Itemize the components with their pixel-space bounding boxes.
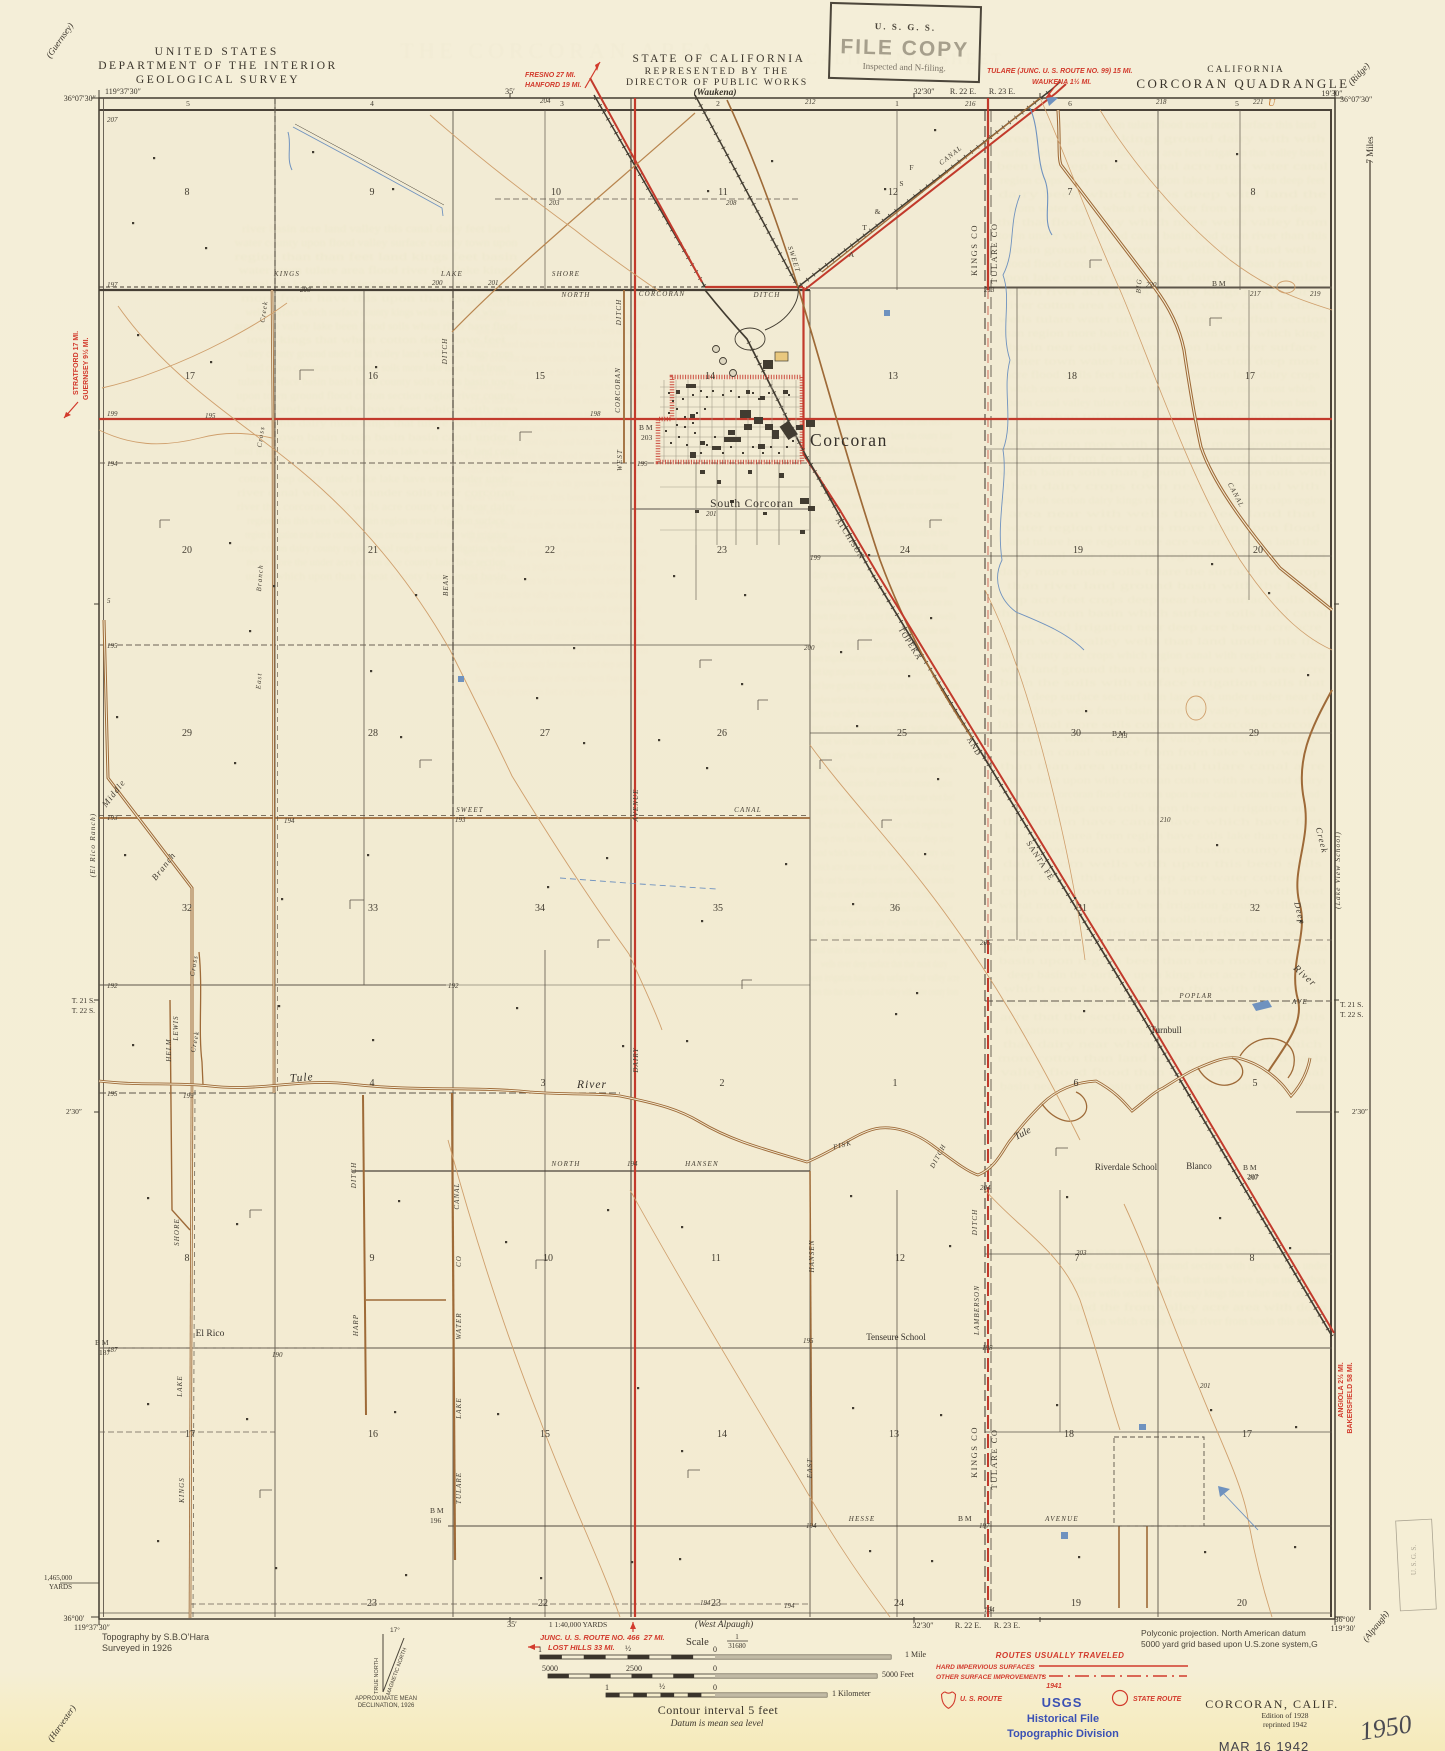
- svg-text:LAMBERSON: LAMBERSON: [973, 1285, 981, 1336]
- svg-text:200: 200: [804, 644, 815, 652]
- svg-text:26: 26: [717, 728, 727, 739]
- svg-text:12: 12: [888, 187, 898, 198]
- svg-text:BEAN: BEAN: [442, 574, 450, 596]
- svg-text:207: 207: [1247, 1172, 1259, 1181]
- svg-text:EAST: EAST: [806, 1458, 814, 1479]
- svg-text:23: 23: [367, 1598, 377, 1609]
- svg-text:5000: 5000: [542, 1664, 558, 1673]
- svg-text:CANAL: CANAL: [453, 1182, 461, 1209]
- svg-text:199: 199: [637, 460, 648, 468]
- svg-text:DITCH: DITCH: [971, 1209, 979, 1237]
- svg-text:16: 16: [368, 1429, 378, 1440]
- svg-text:36°07′30″: 36°07′30″: [64, 94, 96, 103]
- svg-text:28: 28: [368, 728, 378, 739]
- svg-text:R. 22 E.: R. 22 E.: [955, 1621, 981, 1630]
- svg-text:JUNC. U. S. ROUTE NO. 466 27: JUNC. U. S. ROUTE NO. 466 27 MI.: [540, 1633, 665, 1642]
- svg-text:31: 31: [1077, 903, 1087, 914]
- svg-text:HARP: HARP: [352, 1314, 360, 1337]
- svg-text:198: 198: [590, 410, 601, 418]
- svg-text:KINGS: KINGS: [178, 1477, 186, 1504]
- svg-text:13: 13: [888, 371, 898, 382]
- svg-text:3: 3: [541, 1078, 546, 1089]
- svg-text:NORTH: NORTH: [551, 1160, 581, 1168]
- svg-text:B M: B M: [1212, 279, 1226, 288]
- svg-text:U. S. G. S.: U. S. G. S.: [875, 21, 937, 33]
- svg-text:193: 193: [455, 816, 466, 824]
- svg-text:5: 5: [1235, 99, 1239, 108]
- svg-text:STATE OF CALIFORNIA: STATE OF CALIFORNIA: [632, 53, 805, 65]
- svg-text:216: 216: [965, 100, 976, 108]
- svg-text:203: 203: [549, 199, 560, 207]
- svg-text:2′30″: 2′30″: [1352, 1107, 1368, 1116]
- svg-text:2500: 2500: [626, 1664, 642, 1673]
- svg-text:F: F: [909, 163, 914, 172]
- svg-text:½: ½: [659, 1682, 665, 1691]
- svg-text:194: 194: [700, 1599, 711, 1607]
- svg-text:6: 6: [1068, 99, 1072, 108]
- svg-text:TULARE: TULARE: [455, 1472, 463, 1504]
- svg-text:CORCORAN: CORCORAN: [639, 290, 686, 298]
- svg-text:7 Miles: 7 Miles: [1365, 136, 1375, 164]
- svg-text:Surveyed in 1926: Surveyed in 1926: [102, 1643, 172, 1653]
- svg-text:HANSEN: HANSEN: [684, 1160, 719, 1168]
- svg-text:GUERNSEY 9½ MI.: GUERNSEY 9½ MI.: [82, 337, 90, 400]
- svg-text:23: 23: [711, 1598, 721, 1609]
- svg-text:1: 1: [735, 1633, 739, 1641]
- svg-text:194: 194: [806, 1522, 817, 1530]
- svg-text:1,465,000: 1,465,000: [44, 1574, 73, 1582]
- svg-text:194: 194: [627, 1160, 638, 1168]
- svg-text:10: 10: [543, 1253, 553, 1264]
- svg-text:LOST HILLS 33 MI.: LOST HILLS 33 MI.: [548, 1643, 615, 1652]
- svg-text:201: 201: [1200, 1382, 1211, 1390]
- svg-text:KINGS CO: KINGS CO: [969, 1426, 979, 1478]
- svg-text:KINGS: KINGS: [273, 270, 300, 278]
- svg-text:199: 199: [107, 410, 118, 418]
- svg-text:GEOLOGICAL SURVEY: GEOLOGICAL SURVEY: [136, 74, 300, 86]
- svg-text:35: 35: [713, 903, 723, 914]
- svg-text:Blanco: Blanco: [1186, 1161, 1212, 1171]
- svg-text:194: 194: [784, 1602, 795, 1610]
- svg-text:DITCH: DITCH: [615, 299, 623, 327]
- svg-text:5000 Feet: 5000 Feet: [882, 1670, 915, 1679]
- svg-text:36°07′30″: 36°07′30″: [1340, 95, 1372, 104]
- svg-text:8: 8: [1251, 187, 1256, 198]
- svg-text:Corcoran: Corcoran: [810, 430, 888, 450]
- svg-text:LEWIS: LEWIS: [172, 1015, 180, 1041]
- svg-text:196: 196: [430, 1516, 442, 1525]
- svg-text:&: &: [875, 207, 882, 216]
- svg-text:11: 11: [711, 1253, 721, 1264]
- svg-text:195: 195: [803, 1337, 814, 1345]
- svg-text:DITCH: DITCH: [752, 291, 780, 299]
- svg-text:9: 9: [370, 187, 375, 198]
- svg-text:STATE ROUTE: STATE ROUTE: [1133, 1696, 1182, 1703]
- svg-text:22: 22: [545, 545, 555, 556]
- svg-text:33: 33: [368, 903, 378, 914]
- svg-text:1: 1: [538, 1645, 542, 1654]
- svg-text:BIG: BIG: [1134, 278, 1143, 293]
- svg-text:POPLAR: POPLAR: [1178, 992, 1212, 1000]
- svg-text:1 1:40,000 YARDS: 1 1:40,000 YARDS: [549, 1620, 607, 1629]
- svg-text:BAKERSFIELD 58 MI.: BAKERSFIELD 58 MI.: [1347, 1362, 1354, 1433]
- svg-text:DECLINATION, 1926: DECLINATION, 1926: [358, 1703, 415, 1709]
- svg-text:23: 23: [717, 545, 727, 556]
- svg-text:NORTH: NORTH: [561, 291, 591, 299]
- svg-text:15: 15: [540, 1429, 550, 1440]
- svg-text:B M: B M: [1243, 1163, 1257, 1172]
- svg-text:LAKE: LAKE: [455, 1397, 463, 1420]
- svg-text:193: 193: [107, 814, 118, 822]
- svg-text:14: 14: [705, 371, 715, 382]
- svg-text:195: 195: [205, 412, 216, 420]
- svg-text:218: 218: [1156, 98, 1167, 106]
- svg-text:B M: B M: [639, 423, 653, 432]
- svg-text:0: 0: [713, 1645, 717, 1654]
- svg-text:CANAL: CANAL: [734, 806, 762, 814]
- svg-text:HELM: HELM: [165, 1038, 173, 1063]
- svg-text:14: 14: [717, 1429, 727, 1440]
- svg-text:B M: B M: [95, 1338, 109, 1347]
- svg-text:8: 8: [1250, 1253, 1255, 1264]
- svg-text:ROUTES USUALLY TRAVELED: ROUTES USUALLY TRAVELED: [996, 1651, 1125, 1660]
- svg-text:LAKE: LAKE: [176, 1375, 184, 1398]
- svg-text:20: 20: [1237, 1598, 1247, 1609]
- svg-text:MAR 16 1942: MAR 16 1942: [1219, 1739, 1310, 1751]
- svg-text:203: 203: [1076, 1249, 1087, 1257]
- svg-text:Topography by S.B.O’Hara: Topography by S.B.O’Hara: [102, 1632, 209, 1642]
- svg-text:24: 24: [894, 1598, 904, 1609]
- svg-text:194: 194: [284, 817, 295, 825]
- svg-text:DAIRY: DAIRY: [632, 1047, 640, 1073]
- svg-text:119°37′30″: 119°37′30″: [74, 1623, 110, 1632]
- svg-text:T. 22 S.: T. 22 S.: [72, 1006, 95, 1015]
- svg-text:East: East: [254, 672, 263, 690]
- svg-text:17: 17: [1245, 371, 1255, 382]
- svg-text:B M: B M: [958, 1514, 972, 1523]
- svg-text:194: 194: [107, 460, 118, 468]
- svg-text:(Waukena): (Waukena): [693, 87, 736, 98]
- svg-text:B M: B M: [430, 1506, 444, 1515]
- svg-text:Historical File: Historical File: [1027, 1713, 1099, 1725]
- svg-text:201: 201: [706, 510, 717, 518]
- svg-text:29: 29: [1249, 728, 1259, 739]
- svg-text:CO: CO: [455, 1255, 463, 1267]
- svg-text:8: 8: [185, 1253, 190, 1264]
- svg-text:11: 11: [718, 187, 728, 198]
- svg-text:2′30″: 2′30″: [66, 1107, 82, 1116]
- svg-text:201: 201: [488, 279, 499, 287]
- svg-text:Tule: Tule: [289, 1071, 314, 1085]
- svg-text:213: 213: [984, 286, 995, 294]
- svg-text:29: 29: [182, 728, 192, 739]
- svg-text:2: 2: [720, 1078, 725, 1089]
- svg-text:A: A: [849, 250, 855, 259]
- svg-text:16: 16: [368, 371, 378, 382]
- svg-text:30: 30: [1071, 728, 1081, 739]
- svg-text:TULARE CO: TULARE CO: [989, 223, 999, 284]
- svg-text:SHORE: SHORE: [552, 270, 580, 278]
- svg-text:HESSE: HESSE: [848, 1515, 876, 1523]
- svg-text:TULARE (JUNC. U. S. ROUTE NO.: TULARE (JUNC. U. S. ROUTE NO. 99) 15 MI.: [987, 68, 1133, 75]
- svg-text:R. 23 E.: R. 23 E.: [989, 87, 1015, 96]
- svg-text:200: 200: [300, 286, 311, 294]
- svg-text:U. S. ROUTE: U. S. ROUTE: [960, 1696, 1002, 1703]
- svg-text:19: 19: [1073, 545, 1083, 556]
- svg-text:25: 25: [897, 728, 907, 739]
- svg-text:205: 205: [980, 939, 991, 947]
- svg-text:USGS: USGS: [1042, 1695, 1083, 1710]
- svg-text:APPROXIMATE MEAN: APPROXIMATE MEAN: [355, 1696, 417, 1702]
- svg-text:200: 200: [432, 279, 443, 287]
- svg-text:192: 192: [448, 982, 459, 990]
- svg-text:Tenseure School: Tenseure School: [866, 1332, 926, 1342]
- svg-text:194: 194: [984, 1606, 995, 1614]
- svg-text:1941: 1941: [1046, 1683, 1062, 1690]
- svg-text:197: 197: [107, 281, 118, 289]
- svg-text:12: 12: [895, 1253, 905, 1264]
- svg-text:203: 203: [641, 433, 653, 442]
- svg-text:17: 17: [185, 1429, 195, 1440]
- svg-text:River: River: [576, 1079, 607, 1091]
- svg-text:36°00′: 36°00′: [64, 1614, 85, 1623]
- svg-text:B M: B M: [1112, 729, 1126, 738]
- svg-text:Datum is mean sea level: Datum is mean sea level: [670, 1719, 764, 1729]
- svg-text:T. 21 S.: T. 21 S.: [1340, 1000, 1363, 1009]
- svg-text:(El Rico Ranch): (El Rico Ranch): [88, 813, 97, 878]
- svg-text:WEST: WEST: [616, 449, 624, 471]
- svg-text:FRESNO 27 MI.: FRESNO 27 MI.: [525, 72, 576, 79]
- svg-text:1: 1: [605, 1683, 609, 1692]
- svg-text:reprinted 1942: reprinted 1942: [1263, 1720, 1307, 1729]
- svg-text:CALIFORNIA: CALIFORNIA: [1207, 65, 1285, 75]
- svg-text:17: 17: [1242, 1429, 1252, 1440]
- svg-text:36: 36: [890, 903, 900, 914]
- svg-text:34: 34: [535, 903, 545, 914]
- svg-text:208: 208: [726, 199, 737, 207]
- svg-text:5: 5: [1253, 1078, 1258, 1089]
- svg-text:5: 5: [107, 597, 111, 605]
- svg-text:Scale: Scale: [686, 1637, 709, 1648]
- svg-text:2: 2: [716, 99, 720, 108]
- svg-text:TULARE CO: TULARE CO: [989, 1429, 999, 1490]
- svg-text:ANGIOLA 2½ MI.: ANGIOLA 2½ MI.: [1337, 1362, 1345, 1417]
- svg-text:195: 195: [107, 1090, 118, 1098]
- svg-text:S: S: [899, 179, 904, 188]
- svg-text:Edition of 1928: Edition of 1928: [1261, 1711, 1308, 1720]
- svg-text:U. S. G. S.: U. S. G. S.: [1410, 1545, 1418, 1575]
- svg-text:REPRESENTED BY THE: REPRESENTED BY THE: [645, 66, 790, 77]
- svg-text:HANSEN: HANSEN: [808, 1239, 816, 1273]
- svg-text:20: 20: [182, 545, 192, 556]
- svg-text:21: 21: [368, 545, 378, 556]
- svg-text:204: 204: [540, 97, 551, 105]
- svg-text:9: 9: [370, 1253, 375, 1264]
- svg-text:221: 221: [1253, 98, 1264, 106]
- svg-text:32: 32: [1250, 903, 1260, 914]
- svg-text:T: T: [862, 223, 868, 232]
- svg-text:Riverdale School: Riverdale School: [1095, 1162, 1158, 1172]
- svg-text:Contour interval 5 feet: Contour interval 5 feet: [658, 1703, 779, 1717]
- svg-text:18: 18: [1067, 371, 1077, 382]
- svg-text:SHORE: SHORE: [173, 1218, 181, 1246]
- svg-text:UNITED STATES: UNITED STATES: [155, 46, 280, 58]
- svg-text:31680: 31680: [728, 1642, 746, 1650]
- svg-text:HARD IMPERVIOUS SURFACES: HARD IMPERVIOUS SURFACES: [936, 1664, 1035, 1671]
- svg-text:220: 220: [1146, 281, 1157, 289]
- svg-text:219: 219: [1310, 290, 1321, 298]
- svg-text:24: 24: [900, 545, 910, 556]
- svg-text:OTHER SURFACE IMPROVEMENTS: OTHER SURFACE IMPROVEMENTS: [936, 1674, 1047, 1681]
- svg-text:DEPARTMENT OF THE INTERIOR: DEPARTMENT OF THE INTERIOR: [98, 60, 337, 72]
- svg-text:T. 22 S.: T. 22 S.: [1340, 1010, 1363, 1019]
- svg-text:20: 20: [1253, 545, 1263, 556]
- svg-text:5000 yard grid based upon U.S.: 5000 yard grid based upon U.S.zone syste…: [1141, 1639, 1318, 1649]
- svg-text:KINGS CO: KINGS CO: [969, 224, 979, 276]
- svg-text:15: 15: [535, 371, 545, 382]
- svg-text:R. 22 E.: R. 22 E.: [950, 87, 976, 96]
- svg-text:199: 199: [810, 554, 821, 562]
- svg-text:TRUE NORTH: TRUE NORTH: [374, 1658, 380, 1694]
- svg-text:SWEET: SWEET: [456, 806, 484, 814]
- svg-text:18: 18: [1064, 1429, 1074, 1440]
- svg-text:FILE COPY: FILE COPY: [840, 35, 969, 62]
- svg-text:190: 190: [272, 1351, 283, 1359]
- svg-text:1 Kilometer: 1 Kilometer: [832, 1689, 871, 1698]
- svg-text:0: 0: [713, 1664, 717, 1673]
- svg-text:8: 8: [185, 187, 190, 198]
- svg-text:27: 27: [540, 728, 550, 739]
- svg-text:LAKE: LAKE: [440, 270, 463, 278]
- svg-text:3: 3: [560, 99, 564, 108]
- svg-text:AVENUE: AVENUE: [632, 788, 640, 822]
- svg-text:4: 4: [370, 99, 374, 108]
- svg-text:17: 17: [185, 371, 195, 382]
- svg-text:1 Mile: 1 Mile: [905, 1650, 927, 1659]
- svg-text:7: 7: [1068, 187, 1073, 198]
- svg-text:WATER: WATER: [455, 1312, 463, 1339]
- svg-text:199: 199: [183, 1092, 194, 1100]
- svg-text:198: 198: [982, 1344, 993, 1352]
- svg-text:13: 13: [889, 1429, 899, 1440]
- svg-text:36°00′: 36°00′: [1335, 1615, 1356, 1624]
- svg-text:AVENUE: AVENUE: [1044, 1515, 1079, 1523]
- svg-text:CORCORAN QUADRANGLE: CORCORAN QUADRANGLE: [1136, 76, 1349, 91]
- svg-text:Turnbull: Turnbull: [1150, 1025, 1182, 1035]
- svg-text:17°: 17°: [390, 1626, 400, 1634]
- svg-text:35′: 35′: [507, 1620, 517, 1629]
- svg-text:197: 197: [979, 1522, 990, 1530]
- svg-text:210: 210: [1160, 816, 1171, 824]
- svg-text:195: 195: [107, 642, 118, 650]
- svg-text:32′30″: 32′30″: [913, 87, 934, 96]
- svg-text:187: 187: [99, 1348, 111, 1357]
- svg-text:Topographic Division: Topographic Division: [1007, 1728, 1119, 1740]
- svg-text:(West Alpaugh): (West Alpaugh): [695, 1619, 753, 1630]
- svg-text:South Corcoran: South Corcoran: [710, 498, 794, 510]
- svg-text:U: U: [1268, 98, 1276, 109]
- svg-text:10: 10: [551, 187, 561, 198]
- svg-text:R. 23 E.: R. 23 E.: [994, 1621, 1020, 1630]
- svg-text:HANFORD 19 MI.: HANFORD 19 MI.: [525, 82, 581, 89]
- svg-text:½: ½: [625, 1644, 631, 1653]
- svg-text:CORCORAN: CORCORAN: [614, 367, 622, 413]
- svg-text:192: 192: [107, 982, 118, 990]
- svg-text:4: 4: [370, 1078, 375, 1089]
- svg-text:Polyconic projection. North Am: Polyconic projection. North American dat…: [1141, 1628, 1306, 1638]
- svg-text:119°30′: 119°30′: [1331, 1624, 1356, 1633]
- svg-text:YARDS: YARDS: [49, 1583, 72, 1591]
- svg-text:22: 22: [538, 1598, 548, 1609]
- svg-text:DITCH: DITCH: [350, 1162, 358, 1190]
- svg-text:DIRECTOR OF PUBLIC WORKS: DIRECTOR OF PUBLIC WORKS: [626, 77, 808, 88]
- svg-text:(Lake View School): (Lake View School): [1333, 831, 1342, 909]
- svg-text:217: 217: [1250, 290, 1261, 298]
- svg-text:5: 5: [186, 99, 190, 108]
- svg-text:32′30″: 32′30″: [912, 1621, 933, 1630]
- svg-text:STRATFORD 17 MI.: STRATFORD 17 MI.: [73, 331, 80, 395]
- svg-text:DITCH: DITCH: [441, 338, 449, 366]
- svg-text:6: 6: [1074, 1078, 1079, 1089]
- svg-text:AVE: AVE: [1291, 998, 1308, 1006]
- svg-text:1: 1: [893, 1078, 898, 1089]
- svg-text:32: 32: [182, 903, 192, 914]
- svg-text:El Rico: El Rico: [196, 1329, 225, 1339]
- svg-text:35′: 35′: [505, 87, 515, 96]
- svg-text:CORCORAN, CALIF.: CORCORAN, CALIF.: [1205, 1697, 1338, 1711]
- svg-text:WAUKENA 1½ MI.: WAUKENA 1½ MI.: [1032, 78, 1091, 86]
- svg-text:212: 212: [805, 98, 816, 106]
- svg-text:T. 21 S.: T. 21 S.: [72, 996, 95, 1005]
- svg-text:204: 204: [980, 1184, 991, 1192]
- svg-text:119°37′30″: 119°37′30″: [105, 87, 141, 96]
- svg-text:0: 0: [713, 1683, 717, 1692]
- svg-text:19: 19: [1071, 1598, 1081, 1609]
- svg-text:1: 1: [895, 99, 899, 108]
- svg-text:207: 207: [107, 116, 118, 124]
